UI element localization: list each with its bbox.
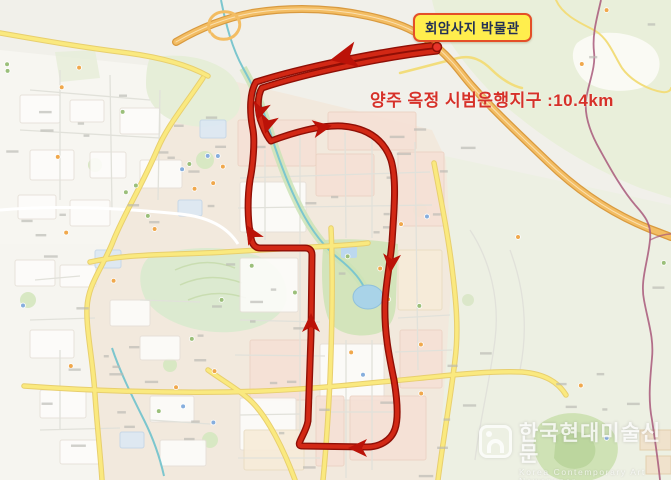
poi-callout-label[interactable]: 회암사지 박물관 [413,13,532,42]
map-canvas[interactable] [0,0,671,480]
map-screenshot: 회암사지 박물관 양주 옥정 시범운행지구 :10.4km 한국현대미술신문 K… [0,0,671,480]
route-start-marker[interactable] [433,43,442,52]
route-distance-caption: 양주 옥정 시범운행지구 :10.4km [370,86,614,111]
